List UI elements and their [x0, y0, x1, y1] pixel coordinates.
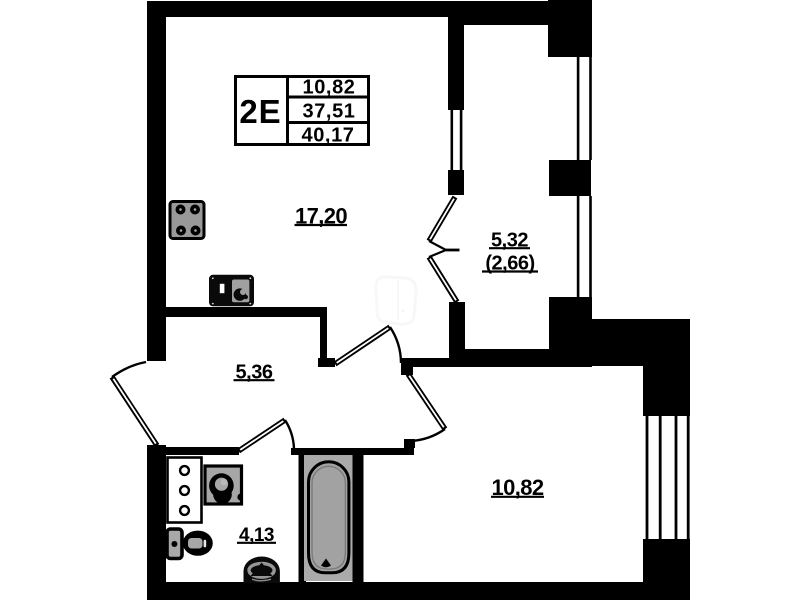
- svg-text:2E: 2E: [239, 93, 281, 130]
- svg-text:37,51: 37,51: [302, 101, 355, 123]
- svg-text:10,82: 10,82: [302, 77, 355, 99]
- svg-text:40,17: 40,17: [301, 125, 354, 147]
